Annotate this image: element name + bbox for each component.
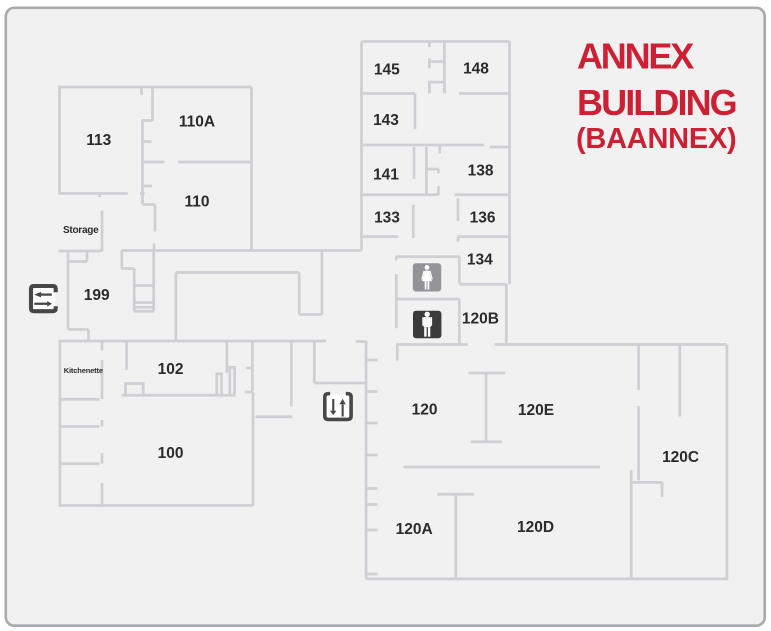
- svg-text:134: 134: [467, 251, 493, 268]
- svg-text:120C: 120C: [662, 449, 699, 466]
- svg-text:120A: 120A: [396, 521, 433, 538]
- svg-text:120: 120: [412, 402, 438, 419]
- svg-text:133: 133: [374, 210, 400, 227]
- svg-text:100: 100: [158, 445, 184, 462]
- svg-text:Kitchenette: Kitchenette: [64, 366, 103, 375]
- svg-text:110A: 110A: [179, 114, 215, 131]
- svg-text:(BAANNEX): (BAANNEX): [576, 123, 736, 155]
- svg-text:145: 145: [374, 61, 400, 78]
- svg-text:141: 141: [373, 167, 399, 184]
- svg-text:113: 113: [86, 132, 111, 149]
- svg-text:120E: 120E: [518, 402, 554, 419]
- svg-text:120D: 120D: [517, 519, 554, 536]
- svg-text:120B: 120B: [462, 311, 499, 328]
- svg-text:199: 199: [84, 287, 110, 304]
- svg-text:143: 143: [373, 112, 399, 129]
- svg-text:Storage: Storage: [63, 225, 99, 236]
- svg-text:136: 136: [470, 210, 496, 227]
- svg-text:148: 148: [463, 61, 489, 78]
- svg-text:138: 138: [468, 163, 494, 180]
- svg-text:102: 102: [158, 361, 184, 378]
- svg-text:110: 110: [184, 194, 209, 211]
- svg-text:ANNEX: ANNEX: [577, 35, 694, 76]
- svg-text:BUILDING: BUILDING: [577, 82, 736, 123]
